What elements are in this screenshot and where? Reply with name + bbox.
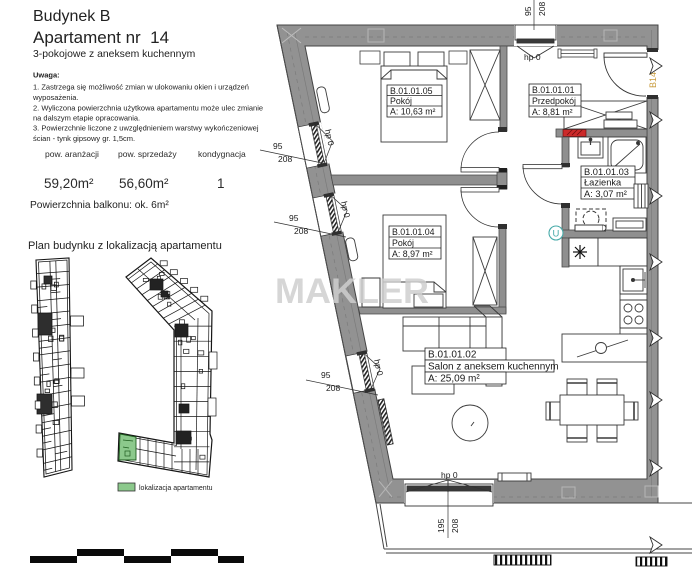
svg-text:2. Wyliczona powierzchnia użyt: 2. Wyliczona powierzchnia użytkowa apart… [33,103,263,112]
svg-text:B.01.01.04: B.01.01.04 [392,227,435,237]
svg-text:3-pokojowe z aneksem kuchennym: 3-pokojowe z aneksem kuchennym [33,49,195,60]
svg-text:95: 95 [523,6,533,16]
svg-text:95: 95 [321,370,331,380]
svg-text:MAKLER: MAKLER [275,272,429,311]
svg-text:hp 0: hp 0 [441,470,458,480]
svg-text:Przedpokój: Przedpokój [532,96,576,106]
svg-text:Budynek B: Budynek B [33,8,110,25]
svg-text:pow. aranżacji: pow. aranżacji [45,149,99,159]
svg-text:A: 25,09 m²: A: 25,09 m² [428,374,480,385]
svg-text:59,20m²: 59,20m² [44,176,94,191]
svg-text:A: 8,97 m²: A: 8,97 m² [392,249,433,259]
svg-text:208: 208 [537,2,547,16]
svg-text:A: 3,07 m²: A: 3,07 m² [584,189,627,199]
svg-text:B.01.01.05: B.01.01.05 [390,86,433,96]
svg-text:Pokój: Pokój [390,96,412,106]
svg-text:95: 95 [289,213,299,223]
svg-text:Salon z aneksem kuchennym: Salon z aneksem kuchennym [428,362,559,373]
svg-text:Powierzchnia balkonu: ok. 6m²: Powierzchnia balkonu: ok. 6m² [30,200,169,211]
svg-text:A: 8,81 m²: A: 8,81 m² [532,107,573,117]
svg-text:B.01.01.01: B.01.01.01 [532,85,575,95]
svg-text:lokalizacja apartamentu: lokalizacja apartamentu [139,485,213,492]
svg-text:Apartament nr 14: Apartament nr 14 [33,28,169,47]
svg-text:na dalszym etapie opracowania.: na dalszym etapie opracowania. [33,113,140,122]
svg-text:3. Powierzchnie liczone z uwzg: 3. Powierzchnie liczone z uwzględnieniem… [33,124,259,133]
svg-text:hp 0: hp 0 [524,52,541,62]
svg-text:95: 95 [273,141,283,151]
svg-text:A: 10,63 m²: A: 10,63 m² [390,107,436,117]
svg-text:1. Zastrzega się możliwość zmi: 1. Zastrzega się możliwość zmian w uloko… [33,83,249,92]
svg-text:Uwaga:: Uwaga: [33,71,60,80]
svg-text:ścian - tynk gipsowy gr. 1,5cm: ścian - tynk gipsowy gr. 1,5cm. [33,134,135,143]
svg-text:U: U [553,229,560,240]
svg-text:Łazienka: Łazienka [584,178,622,188]
svg-text:1: 1 [217,176,225,191]
svg-text:208: 208 [450,519,460,533]
svg-text:Plan budynku z lokalizacją apa: Plan budynku z lokalizacją apartamentu [28,240,222,252]
svg-text:kondygnacja: kondygnacja [198,149,246,159]
svg-text:Pokój: Pokój [392,238,414,248]
svg-text:208: 208 [326,383,340,393]
svg-text:pow. sprzedaży: pow. sprzedaży [118,149,177,159]
svg-text:208: 208 [294,226,308,236]
svg-text:B.01.01.03: B.01.01.03 [584,167,629,177]
svg-text:wyposażenia.: wyposażenia. [32,93,78,102]
svg-text:208: 208 [278,154,292,164]
svg-text:B.01.01.02: B.01.01.02 [428,350,477,361]
svg-text:56,60m²: 56,60m² [119,176,169,191]
svg-text:195: 195 [436,519,446,533]
